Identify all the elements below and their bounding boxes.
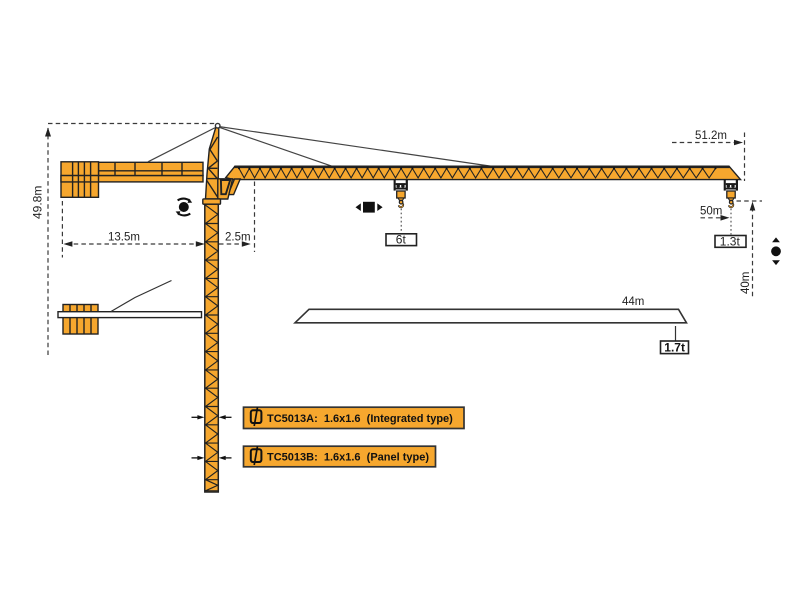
- svg-text:1.3t: 1.3t: [720, 234, 741, 248]
- svg-text:49.8m: 49.8m: [31, 186, 45, 219]
- svg-text:44m: 44m: [622, 296, 644, 308]
- svg-text:40m: 40m: [740, 272, 752, 294]
- svg-text:6t: 6t: [396, 233, 407, 247]
- svg-text:13.5m: 13.5m: [108, 232, 140, 244]
- svg-text:TC5013A: 1.6x1.6 (Integrated: TC5013A: 1.6x1.6 (Integrated type): [267, 413, 453, 425]
- svg-text:1.7t: 1.7t: [664, 341, 685, 355]
- svg-text:50m: 50m: [700, 206, 722, 218]
- svg-text:2.5m: 2.5m: [225, 232, 251, 244]
- svg-text:TC5013B: 1.6x1.6 (Panel type: TC5013B: 1.6x1.6 (Panel type): [267, 452, 429, 464]
- svg-text:51.2m: 51.2m: [695, 130, 727, 142]
